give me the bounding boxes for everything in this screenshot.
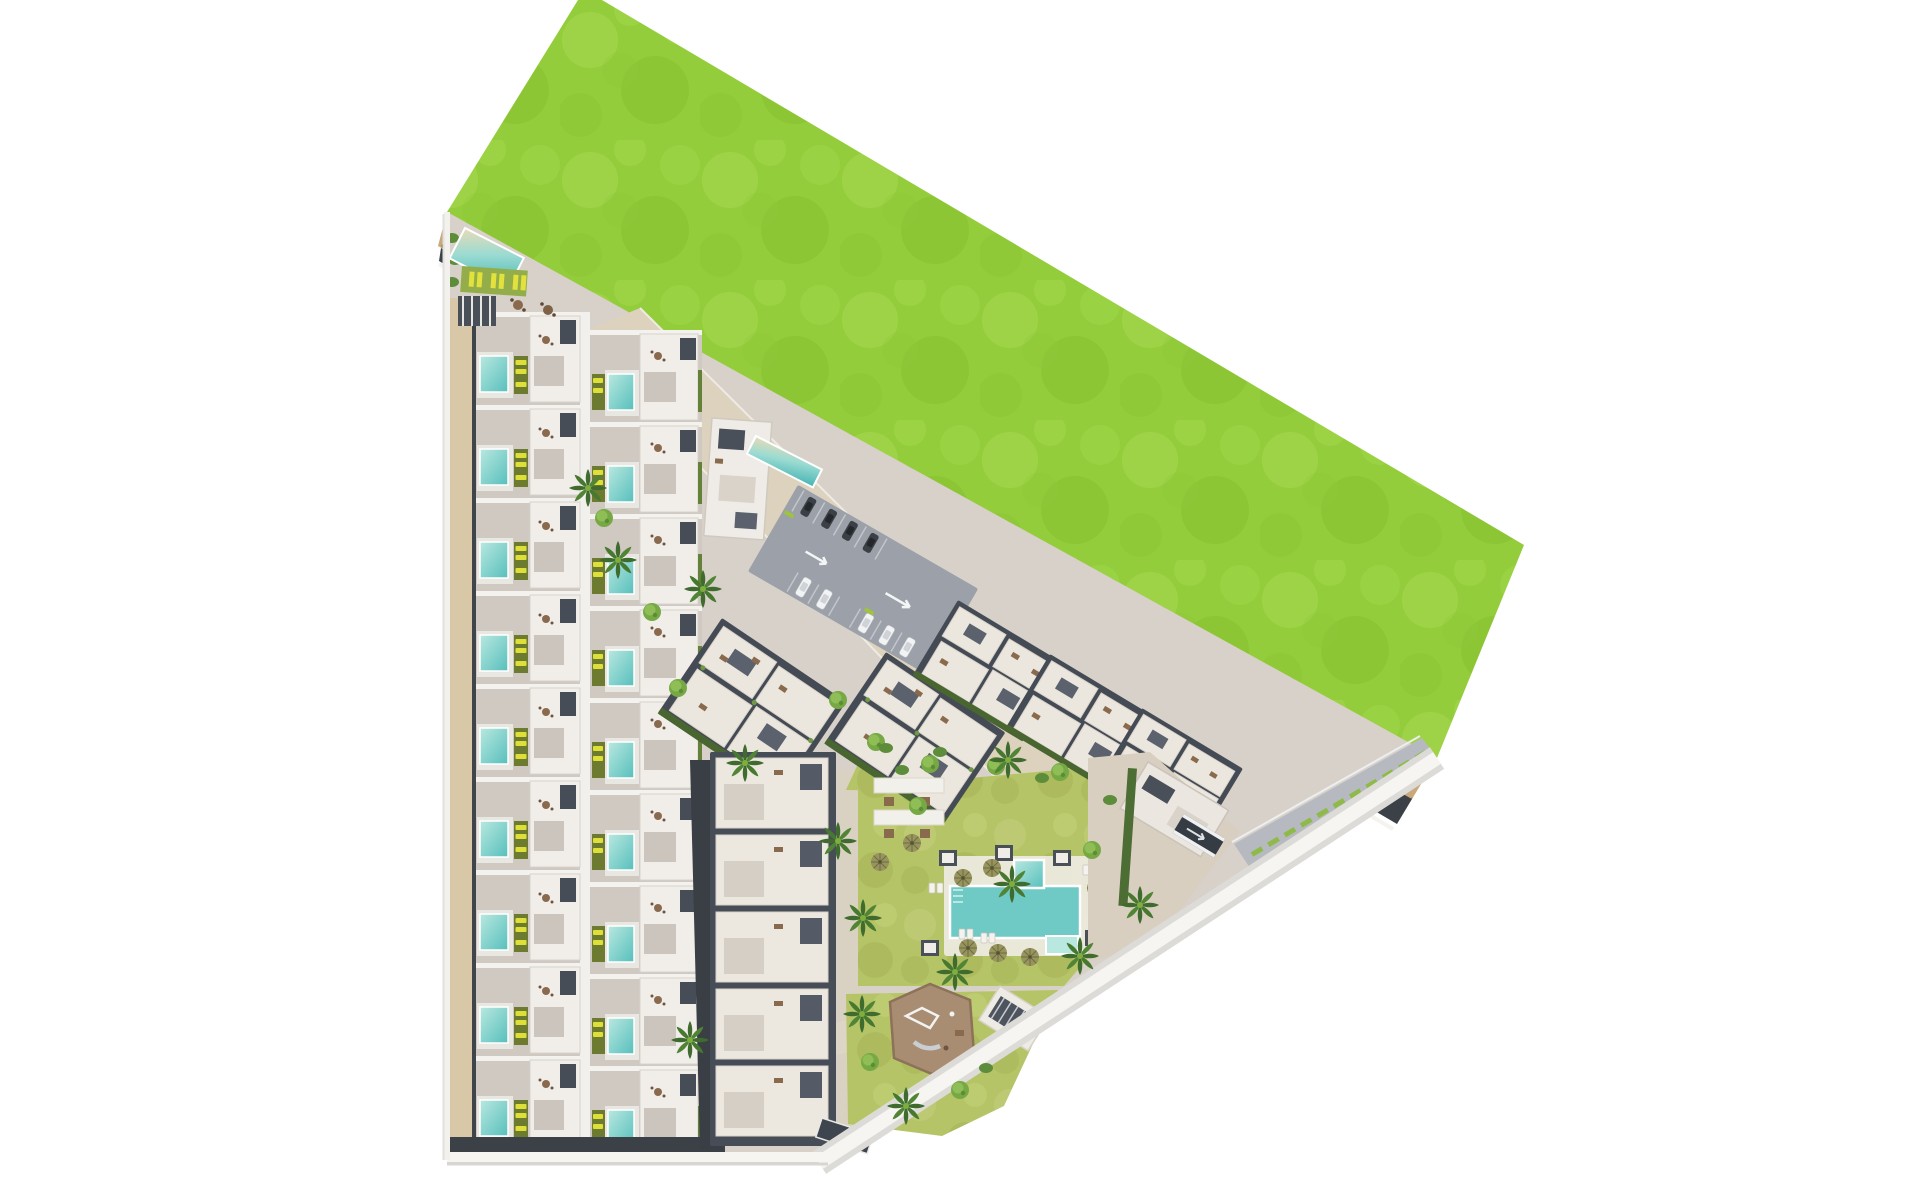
straw-umbrella <box>1021 948 1039 966</box>
palm-tree <box>993 865 1031 903</box>
site-plan-rendering <box>0 0 1920 1200</box>
bush <box>979 1063 993 1073</box>
pergola <box>458 296 496 326</box>
cabana-daybed <box>939 850 957 866</box>
palm-tree <box>843 995 881 1033</box>
townhouse-row <box>590 422 702 517</box>
tan-walkway-strip <box>449 298 472 1156</box>
townhouse-row <box>476 777 580 872</box>
townhouse-row <box>590 790 702 885</box>
palm-tree <box>599 541 637 579</box>
straw-umbrella <box>903 834 921 852</box>
palm-tree <box>887 1087 925 1125</box>
straw-umbrella <box>959 939 977 957</box>
straw-umbrella <box>871 853 889 871</box>
palm-tree <box>936 953 974 991</box>
townhouse-row <box>476 498 580 593</box>
sun-deck <box>460 266 528 297</box>
straw-umbrella <box>954 869 972 887</box>
townhouse-row <box>476 1056 580 1151</box>
round-tree <box>669 679 687 697</box>
townhouse-row <box>476 870 580 965</box>
bush <box>933 747 947 757</box>
palm-tree <box>569 469 607 507</box>
complex-south-road <box>450 1137 725 1153</box>
round-tree <box>909 797 927 815</box>
round-tree <box>595 509 613 527</box>
cafe-table <box>513 300 523 310</box>
cafe-table <box>543 305 553 315</box>
townhouse-row <box>476 312 580 407</box>
round-tree <box>1051 763 1069 781</box>
palm-tree <box>684 570 722 608</box>
cabana-daybed <box>921 940 939 956</box>
townhouse-row <box>476 405 580 500</box>
cabana-daybed <box>995 845 1013 861</box>
straw-umbrella <box>989 944 1007 962</box>
site-plan-canvas <box>0 0 1920 1200</box>
palm-tree <box>819 822 857 860</box>
palm-tree <box>1121 886 1159 924</box>
palm-tree <box>989 741 1027 779</box>
townhouse-row <box>590 882 702 977</box>
bush <box>1035 773 1049 783</box>
townhouse-row <box>590 330 702 425</box>
palm-tree <box>1061 937 1099 975</box>
bush <box>1103 795 1117 805</box>
round-tree <box>861 1053 879 1071</box>
townhouse-row <box>590 974 702 1069</box>
round-tree <box>829 691 847 709</box>
palm-tree <box>844 899 882 937</box>
round-tree <box>1083 841 1101 859</box>
bush <box>895 765 909 775</box>
bush <box>879 743 893 753</box>
round-tree <box>951 1081 969 1099</box>
townhouse-row <box>476 591 580 686</box>
straw-umbrella <box>983 859 1001 877</box>
round-tree <box>643 603 661 621</box>
palm-tree <box>726 744 764 782</box>
cabana-daybed <box>1053 850 1071 866</box>
apartment-block-bottom-column <box>710 752 836 1146</box>
townhouse-row <box>476 684 580 779</box>
townhouse-row <box>476 963 580 1058</box>
round-tree <box>921 755 939 773</box>
palm-tree <box>671 1021 709 1059</box>
club-building <box>704 418 772 540</box>
